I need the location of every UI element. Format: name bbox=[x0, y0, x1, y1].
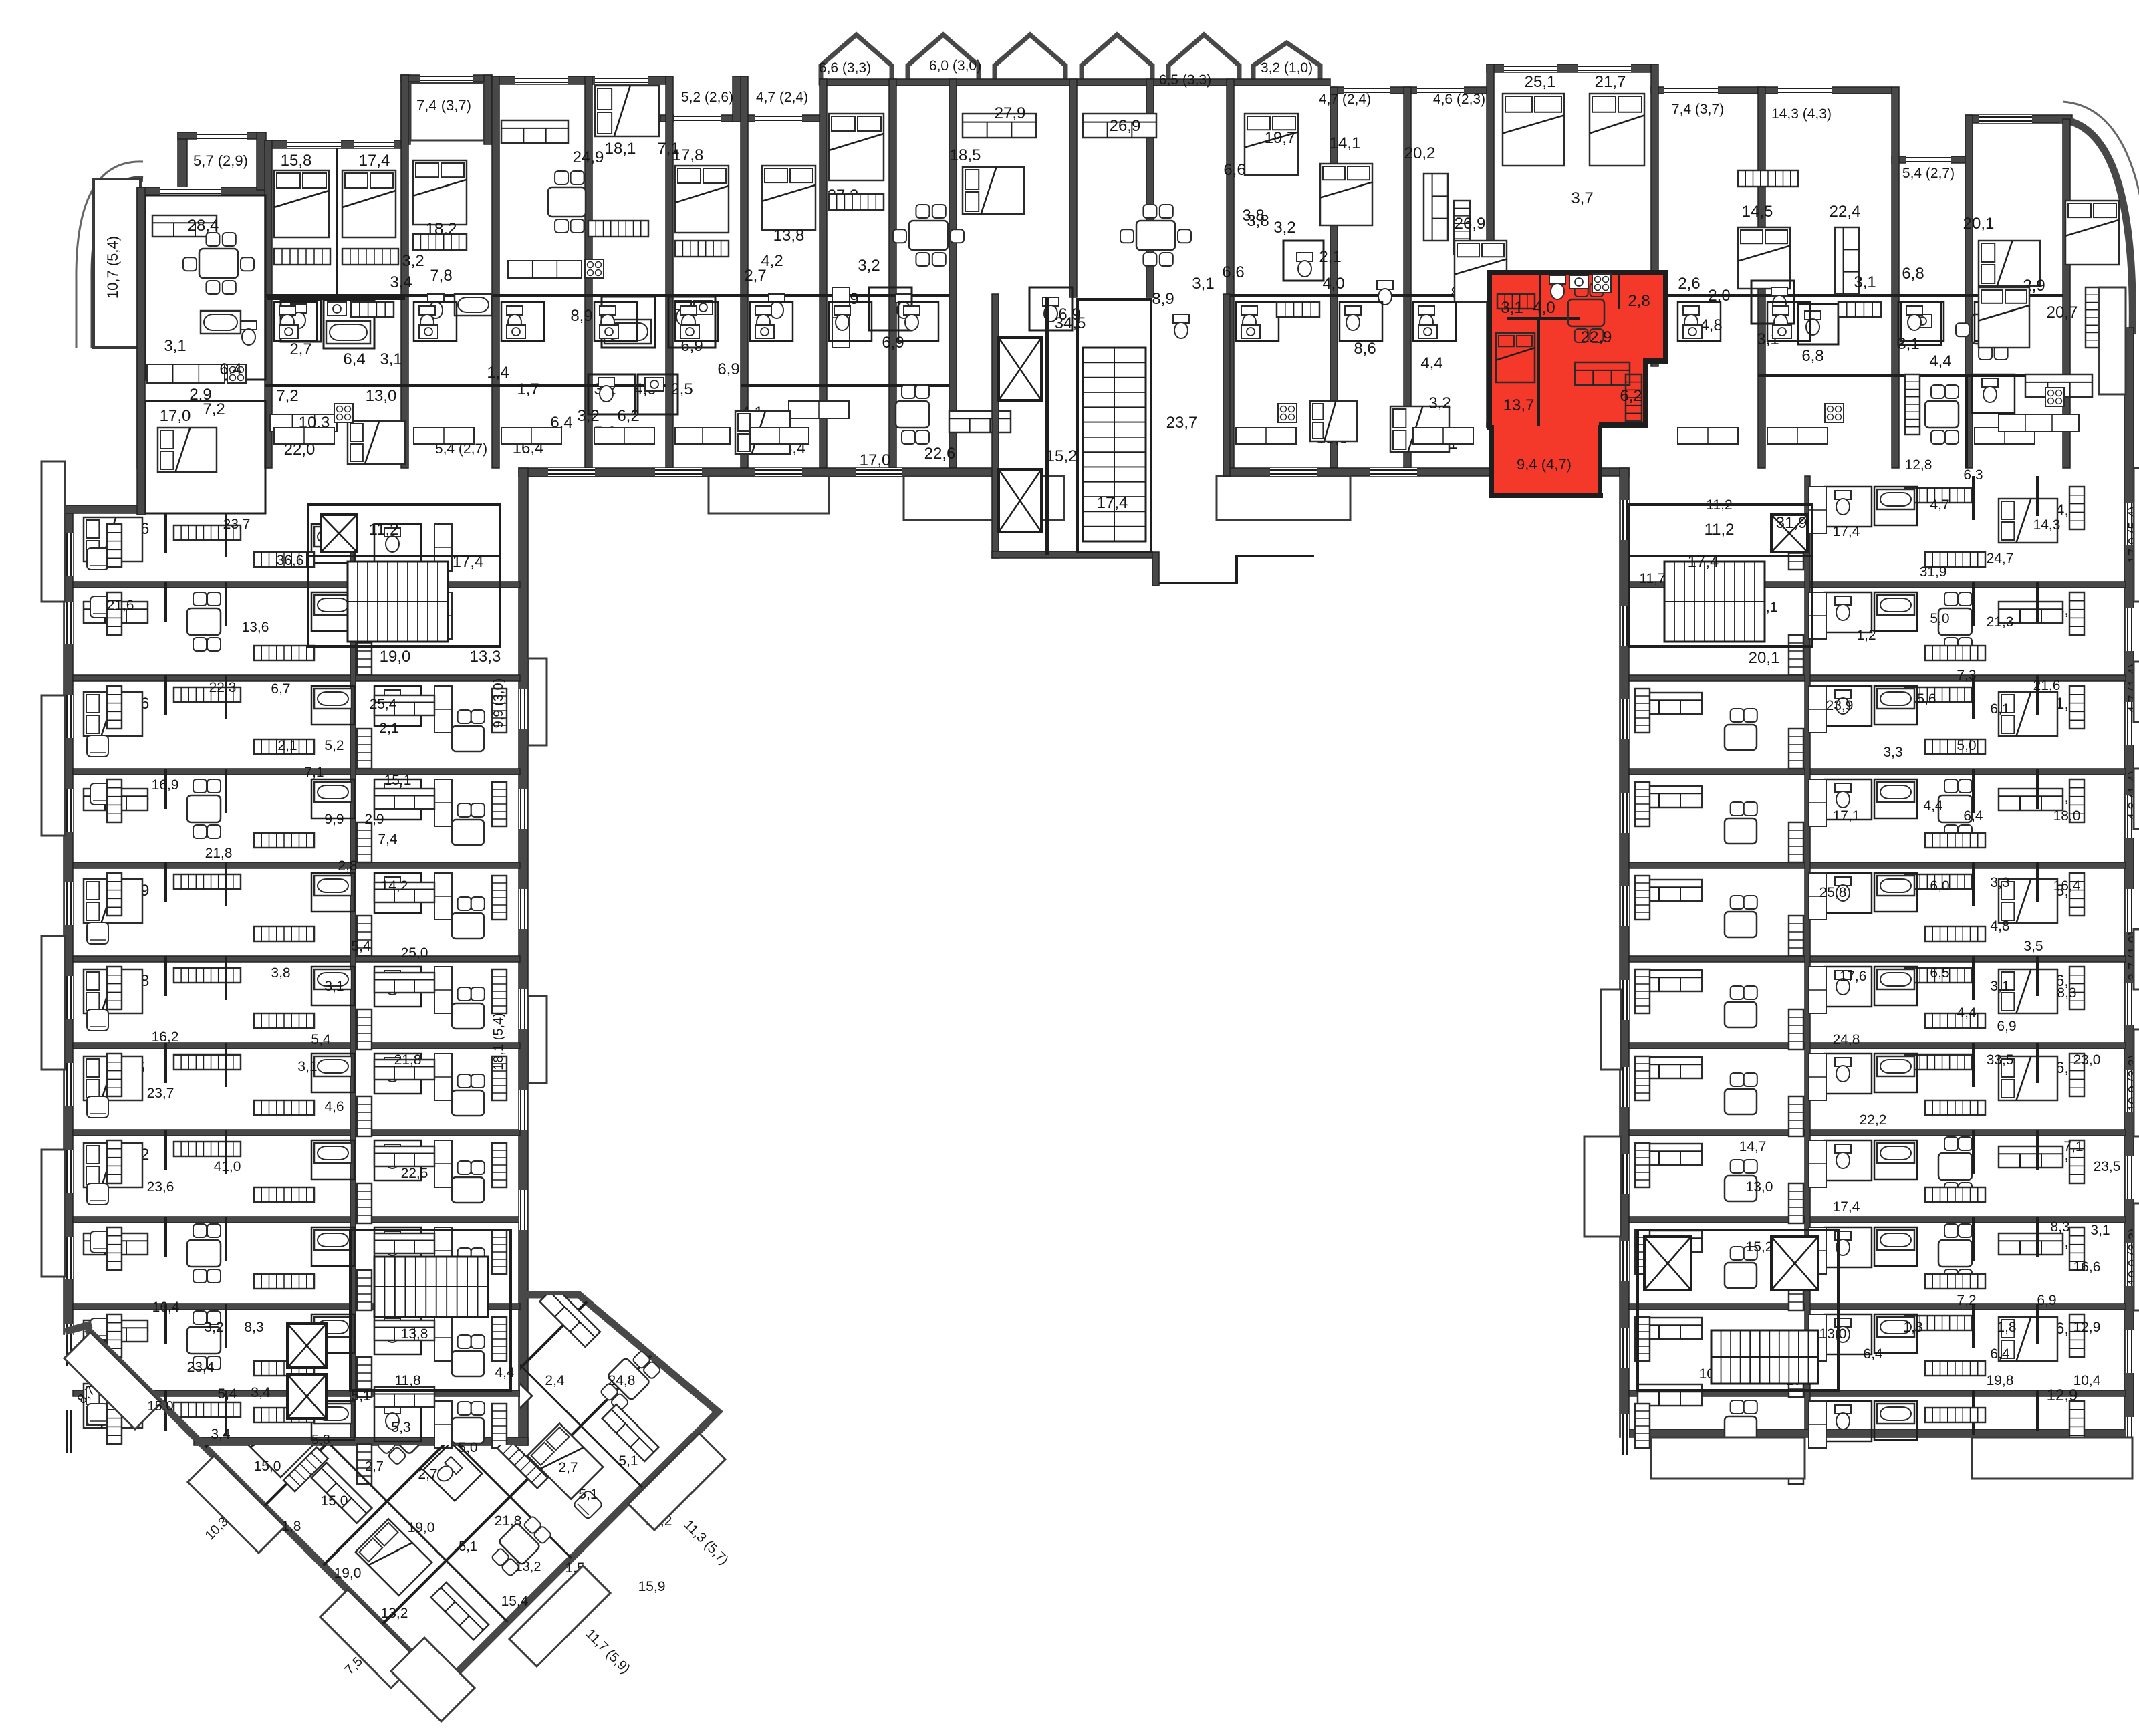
svg-text:6,8: 6,8 bbox=[1801, 347, 1823, 365]
svg-text:5,0: 5,0 bbox=[1957, 738, 1976, 753]
svg-text:19,0: 19,0 bbox=[380, 648, 411, 666]
svg-text:6,9: 6,9 bbox=[1997, 1019, 2016, 1034]
svg-text:8,9: 8,9 bbox=[1152, 290, 1174, 308]
svg-text:6,4: 6,4 bbox=[219, 360, 241, 378]
svg-text:15,2: 15,2 bbox=[1046, 447, 1078, 465]
svg-text:7,4 (3,7): 7,4 (3,7) bbox=[1672, 102, 1724, 117]
svg-text:4,6 (2,3): 4,6 (2,3) bbox=[1433, 92, 1485, 107]
svg-text:13,2: 13,2 bbox=[381, 1606, 408, 1621]
svg-text:25,8: 25,8 bbox=[1819, 885, 1847, 900]
svg-text:27,9: 27,9 bbox=[995, 104, 1026, 122]
svg-text:4,0: 4,0 bbox=[1322, 275, 1344, 293]
svg-text:16,4: 16,4 bbox=[152, 1299, 180, 1315]
svg-text:15,4: 15,4 bbox=[501, 1594, 529, 1609]
svg-text:14,2: 14,2 bbox=[381, 878, 408, 894]
svg-text:31,9: 31,9 bbox=[1920, 564, 1947, 580]
svg-text:3,1: 3,1 bbox=[1990, 979, 2009, 994]
svg-text:6,8: 6,8 bbox=[1902, 265, 1924, 283]
svg-text:18,5: 18,5 bbox=[950, 146, 981, 164]
svg-text:18,1: 18,1 bbox=[605, 140, 636, 158]
svg-text:3,2: 3,2 bbox=[402, 252, 424, 270]
svg-text:4,4: 4,4 bbox=[1923, 798, 1943, 814]
svg-text:3,3: 3,3 bbox=[1883, 745, 1902, 760]
svg-text:17,6: 17,6 bbox=[1840, 969, 1867, 984]
svg-text:3,4: 3,4 bbox=[251, 1385, 271, 1400]
svg-text:3,4: 3,4 bbox=[211, 1427, 231, 1442]
svg-text:4,7 (2,4): 4,7 (2,4) bbox=[1319, 92, 1371, 107]
svg-text:15,2: 15,2 bbox=[1746, 1239, 1773, 1255]
svg-text:13,0: 13,0 bbox=[1746, 1179, 1773, 1195]
svg-text:12,8: 12,8 bbox=[1905, 457, 1932, 473]
svg-text:23,6: 23,6 bbox=[147, 1179, 174, 1195]
svg-text:3,2: 3,2 bbox=[858, 257, 880, 275]
svg-text:3,1: 3,1 bbox=[1854, 273, 1876, 291]
svg-text:4,7: 4,7 bbox=[1930, 497, 1949, 513]
svg-text:4,7 (2,4): 4,7 (2,4) bbox=[756, 90, 808, 105]
svg-text:17,4: 17,4 bbox=[1833, 1199, 1860, 1215]
svg-text:6,7: 6,7 bbox=[271, 681, 290, 697]
svg-text:19,8: 19,8 bbox=[1987, 1373, 2014, 1388]
svg-text:7,3: 7,3 bbox=[1957, 668, 1976, 683]
svg-text:34,5: 34,5 bbox=[1055, 314, 1086, 332]
svg-text:23,5: 23,5 bbox=[2094, 1159, 2121, 1174]
svg-text:17,8: 17,8 bbox=[672, 146, 704, 164]
svg-text:15,1: 15,1 bbox=[384, 773, 412, 788]
svg-text:5,4: 5,4 bbox=[217, 1386, 237, 1402]
svg-text:23,4: 23,4 bbox=[187, 1360, 215, 1375]
svg-text:13,8: 13,8 bbox=[773, 227, 805, 245]
svg-text:16,9: 16,9 bbox=[152, 777, 179, 793]
svg-text:14,3 (4,3): 14,3 (4,3) bbox=[1771, 106, 1832, 122]
svg-text:3,1: 3,1 bbox=[2090, 1223, 2110, 1238]
svg-text:6,6: 6,6 bbox=[1223, 161, 1245, 179]
svg-text:2,9: 2,9 bbox=[364, 812, 384, 827]
svg-text:24,9: 24,9 bbox=[573, 148, 604, 166]
svg-text:31,9: 31,9 bbox=[1776, 514, 1807, 532]
svg-text:17,0: 17,0 bbox=[860, 451, 891, 469]
svg-text:2,7: 2,7 bbox=[365, 1459, 384, 1474]
svg-text:2,1: 2,1 bbox=[1319, 248, 1341, 266]
svg-text:6,2: 6,2 bbox=[1620, 387, 1642, 405]
svg-text:17,4: 17,4 bbox=[1688, 553, 1719, 571]
svg-text:5,2: 5,2 bbox=[324, 738, 344, 753]
svg-text:21,3: 21,3 bbox=[1987, 614, 2014, 630]
svg-text:22,4: 22,4 bbox=[1830, 203, 1861, 221]
svg-text:16,6: 16,6 bbox=[2073, 1259, 2101, 1275]
svg-text:5,1: 5,1 bbox=[618, 1453, 638, 1469]
svg-text:23,9: 23,9 bbox=[1826, 698, 1854, 713]
svg-text:6,9: 6,9 bbox=[717, 360, 739, 378]
svg-text:4,8: 4,8 bbox=[1700, 316, 1722, 334]
svg-text:16,2: 16,2 bbox=[152, 1029, 179, 1045]
svg-text:16,4: 16,4 bbox=[2053, 878, 2081, 894]
svg-text:1,8: 1,8 bbox=[1903, 1320, 1922, 1335]
svg-text:4,4: 4,4 bbox=[1957, 1005, 1977, 1021]
svg-text:3,1: 3,1 bbox=[297, 1059, 317, 1074]
svg-text:13,6: 13,6 bbox=[242, 620, 269, 635]
svg-text:1,7: 1,7 bbox=[517, 380, 539, 398]
svg-text:7,1: 7,1 bbox=[304, 765, 324, 780]
svg-text:15,0: 15,0 bbox=[148, 1399, 174, 1414]
svg-text:8,3: 8,3 bbox=[244, 1320, 263, 1335]
svg-text:36,6: 36,6 bbox=[277, 553, 304, 568]
svg-text:7,8: 7,8 bbox=[430, 267, 452, 285]
svg-text:6,9: 6,9 bbox=[882, 334, 904, 352]
svg-text:13,0: 13,0 bbox=[366, 387, 397, 405]
svg-text:11,2: 11,2 bbox=[369, 521, 399, 539]
svg-text:6,4: 6,4 bbox=[1963, 808, 1983, 824]
svg-text:5,1: 5,1 bbox=[578, 1487, 598, 1502]
svg-text:15,9: 15,9 bbox=[638, 1579, 666, 1594]
svg-text:6,3: 6,3 bbox=[1963, 467, 1983, 483]
svg-text:2,7: 2,7 bbox=[418, 1467, 437, 1482]
svg-text:5,7 (2,9): 5,7 (2,9) bbox=[193, 152, 248, 169]
svg-text:21,6: 21,6 bbox=[107, 598, 134, 613]
svg-text:22,5: 22,5 bbox=[401, 1166, 428, 1181]
svg-text:4,6: 4,6 bbox=[324, 1099, 344, 1114]
svg-text:24,8: 24,8 bbox=[1833, 1032, 1860, 1047]
svg-text:6,4: 6,4 bbox=[1990, 1346, 2010, 1362]
svg-text:5,2 (2,6): 5,2 (2,6) bbox=[681, 90, 733, 105]
svg-text:4,4: 4,4 bbox=[495, 1365, 515, 1380]
svg-text:11,2: 11,2 bbox=[1705, 521, 1735, 539]
svg-text:6,6: 6,6 bbox=[1222, 263, 1244, 281]
svg-text:11,7: 11,7 bbox=[1639, 571, 1665, 586]
svg-text:11,8: 11,8 bbox=[394, 1373, 420, 1388]
svg-text:7,2: 7,2 bbox=[1957, 1293, 1976, 1308]
svg-text:14,5: 14,5 bbox=[1742, 203, 1773, 221]
svg-text:7,2: 7,2 bbox=[276, 387, 298, 405]
svg-text:7,1: 7,1 bbox=[2063, 1139, 2083, 1154]
svg-text:2,1: 2,1 bbox=[379, 721, 398, 736]
svg-text:22,3: 22,3 bbox=[209, 680, 237, 695]
svg-text:13,3: 13,3 bbox=[470, 648, 501, 666]
svg-text:2,8: 2,8 bbox=[338, 858, 357, 874]
svg-text:3,1: 3,1 bbox=[380, 350, 402, 368]
svg-text:2,7: 2,7 bbox=[289, 340, 311, 358]
svg-text:3,3: 3,3 bbox=[1990, 875, 2009, 890]
svg-text:19,0: 19,0 bbox=[334, 1566, 362, 1581]
svg-text:19,0: 19,0 bbox=[408, 1520, 435, 1535]
svg-text:21,8: 21,8 bbox=[394, 1052, 422, 1068]
svg-text:9,4 (4,7): 9,4 (4,7) bbox=[1517, 456, 1571, 473]
svg-text:17,4: 17,4 bbox=[1097, 494, 1128, 512]
svg-text:5,1: 5,1 bbox=[459, 1539, 477, 1554]
svg-text:6,1: 6,1 bbox=[1990, 701, 2009, 717]
svg-text:4,0: 4,0 bbox=[1533, 299, 1555, 317]
svg-text:3,2: 3,2 bbox=[1428, 394, 1451, 412]
svg-text:15,8: 15,8 bbox=[281, 152, 312, 170]
svg-text:5,3: 5,3 bbox=[391, 1420, 410, 1435]
svg-text:3,2: 3,2 bbox=[577, 407, 599, 425]
svg-text:4,8: 4,8 bbox=[1990, 918, 2009, 934]
svg-text:5,4: 5,4 bbox=[311, 1032, 331, 1047]
svg-text:6,4: 6,4 bbox=[343, 350, 365, 368]
svg-text:18,1 (5,4): 18,1 (5,4) bbox=[491, 1013, 506, 1070]
svg-text:18,0: 18,0 bbox=[2053, 808, 2081, 824]
svg-text:21,8: 21,8 bbox=[205, 846, 233, 861]
svg-text:10,4: 10,4 bbox=[2073, 1373, 2101, 1388]
svg-text:21,8: 21,8 bbox=[495, 1513, 522, 1529]
svg-text:14,3: 14,3 bbox=[2033, 517, 2061, 533]
svg-text:25,1: 25,1 bbox=[1525, 73, 1556, 91]
svg-text:2,5: 2,5 bbox=[670, 380, 693, 398]
svg-text:13,7: 13,7 bbox=[1503, 396, 1535, 414]
svg-text:17,1: 17,1 bbox=[1833, 808, 1860, 824]
svg-text:10,7 (5,4): 10,7 (5,4) bbox=[104, 236, 121, 299]
svg-text:2,7: 2,7 bbox=[558, 1460, 578, 1475]
svg-text:22,6: 22,6 bbox=[924, 445, 956, 463]
svg-text:33,5: 33,5 bbox=[1987, 1052, 2014, 1068]
svg-text:14,7: 14,7 bbox=[1739, 1139, 1767, 1154]
svg-text:3,7: 3,7 bbox=[1571, 189, 1593, 207]
svg-text:3,2: 3,2 bbox=[1273, 219, 1295, 237]
svg-text:5,6: 5,6 bbox=[1916, 691, 1936, 707]
svg-text:21,7: 21,7 bbox=[1595, 73, 1626, 91]
svg-text:3,1: 3,1 bbox=[1192, 275, 1214, 293]
svg-text:6,9: 6,9 bbox=[2037, 1293, 2056, 1308]
svg-text:6,5: 6,5 bbox=[1930, 965, 1949, 981]
svg-text:5,0: 5,0 bbox=[458, 1440, 477, 1455]
svg-text:26,9: 26,9 bbox=[1455, 215, 1486, 233]
svg-text:24,8: 24,8 bbox=[608, 1373, 636, 1388]
svg-text:20,1: 20,1 bbox=[1963, 215, 1995, 233]
svg-text:6,9: 6,9 bbox=[680, 337, 703, 355]
svg-text:13,8: 13,8 bbox=[401, 1326, 428, 1342]
svg-text:17,4: 17,4 bbox=[359, 152, 390, 170]
svg-text:14,1: 14,1 bbox=[1330, 134, 1361, 152]
svg-text:25,4: 25,4 bbox=[370, 697, 397, 712]
svg-text:8,6: 8,6 bbox=[1354, 340, 1376, 358]
svg-text:7,2: 7,2 bbox=[203, 400, 225, 418]
svg-text:13,2: 13,2 bbox=[515, 1560, 541, 1574]
svg-text:23,7: 23,7 bbox=[147, 1086, 174, 1101]
svg-text:22,2: 22,2 bbox=[1860, 1112, 1887, 1128]
svg-text:17,4: 17,4 bbox=[1833, 524, 1860, 539]
svg-text:20,2: 20,2 bbox=[1404, 144, 1436, 162]
svg-text:6,4: 6,4 bbox=[1863, 1346, 1883, 1362]
svg-text:5,3: 5,3 bbox=[311, 1433, 330, 1447]
svg-text:26,9: 26,9 bbox=[1110, 117, 1141, 135]
svg-text:6,5 (3,3): 6,5 (3,3) bbox=[1159, 72, 1211, 88]
svg-text:13,0: 13,0 bbox=[1819, 1326, 1847, 1342]
svg-text:6,2: 6,2 bbox=[617, 407, 639, 425]
svg-text:8,9: 8,9 bbox=[570, 307, 592, 325]
svg-text:17,0: 17,0 bbox=[160, 407, 191, 425]
svg-text:24,7: 24,7 bbox=[1987, 551, 2014, 566]
svg-text:3,8: 3,8 bbox=[1247, 212, 1269, 230]
svg-text:21,6: 21,6 bbox=[2033, 678, 2061, 693]
svg-text:12,9: 12,9 bbox=[2073, 1320, 2101, 1335]
svg-text:3,1: 3,1 bbox=[164, 337, 186, 355]
svg-text:3,8: 3,8 bbox=[271, 965, 290, 981]
svg-text:23,7: 23,7 bbox=[223, 517, 251, 532]
svg-text:6,0: 6,0 bbox=[1930, 878, 1949, 894]
svg-text:3,5: 3,5 bbox=[2023, 939, 2043, 954]
svg-text:19,7: 19,7 bbox=[1265, 129, 1296, 147]
svg-text:17,4: 17,4 bbox=[453, 553, 484, 571]
svg-text:7,4 (3,7): 7,4 (3,7) bbox=[416, 97, 471, 114]
svg-text:2,8: 2,8 bbox=[1628, 292, 1650, 310]
svg-text:7,4: 7,4 bbox=[378, 832, 398, 847]
svg-text:20,7: 20,7 bbox=[2047, 303, 2078, 322]
svg-text:4,4: 4,4 bbox=[1929, 352, 1951, 370]
svg-text:20,1: 20,1 bbox=[1749, 649, 1780, 667]
svg-text:9,9 (3,0): 9,9 (3,0) bbox=[491, 678, 506, 728]
svg-text:3,1: 3,1 bbox=[1501, 299, 1523, 317]
svg-text:9,9: 9,9 bbox=[324, 812, 344, 827]
svg-text:23,0: 23,0 bbox=[2073, 1052, 2101, 1068]
svg-text:3,2 (1,0): 3,2 (1,0) bbox=[1261, 60, 1313, 76]
svg-text:4,4: 4,4 bbox=[1420, 354, 1442, 372]
svg-text:15,0: 15,0 bbox=[254, 1459, 281, 1474]
svg-text:2,1: 2,1 bbox=[277, 738, 297, 753]
svg-text:25,0: 25,0 bbox=[401, 945, 428, 961]
svg-text:6,6 (3,3): 6,6 (3,3) bbox=[819, 60, 871, 76]
svg-text:8,3: 8,3 bbox=[2057, 985, 2076, 1001]
svg-text:5,4 (2,7): 5,4 (2,7) bbox=[1902, 166, 1955, 181]
svg-text:6,0 (3,0): 6,0 (3,0) bbox=[929, 58, 981, 74]
svg-text:5,1: 5,1 bbox=[351, 1388, 370, 1404]
svg-text:2,4: 2,4 bbox=[545, 1373, 565, 1388]
svg-text:3,2: 3,2 bbox=[204, 1320, 223, 1335]
svg-text:5,0: 5,0 bbox=[1930, 611, 1949, 626]
svg-text:3,4: 3,4 bbox=[390, 273, 412, 291]
svg-text:41,0: 41,0 bbox=[214, 1159, 241, 1174]
svg-text:4,2: 4,2 bbox=[761, 252, 783, 270]
svg-text:15,0: 15,0 bbox=[321, 1493, 348, 1509]
svg-text:5,4: 5,4 bbox=[351, 939, 371, 954]
svg-text:1,4: 1,4 bbox=[487, 364, 509, 382]
svg-text:22,9: 22,9 bbox=[1581, 328, 1612, 346]
svg-text:28,4: 28,4 bbox=[188, 217, 219, 235]
svg-text:3,1: 3,1 bbox=[324, 979, 344, 994]
svg-text:1,2: 1,2 bbox=[1856, 628, 1876, 643]
svg-text:8,3: 8,3 bbox=[2050, 1219, 2069, 1235]
svg-text:23,7: 23,7 bbox=[1166, 414, 1198, 432]
svg-text:1,8: 1,8 bbox=[1997, 1320, 2016, 1335]
svg-text:2,6: 2,6 bbox=[1678, 275, 1700, 293]
